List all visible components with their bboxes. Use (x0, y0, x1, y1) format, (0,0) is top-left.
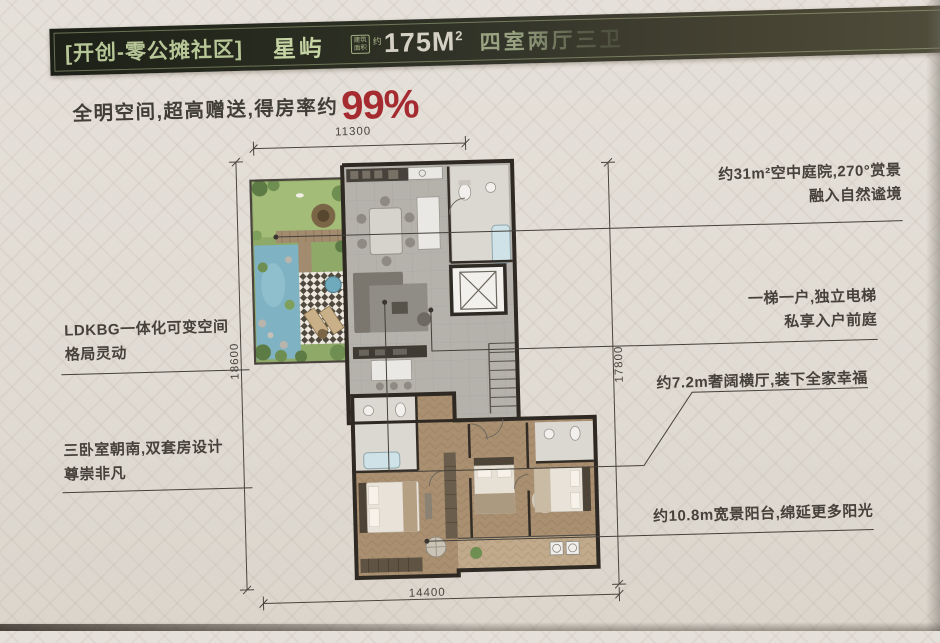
bar-island (371, 360, 412, 391)
dimension-top: 11300 (313, 125, 393, 139)
elevator-shaft (451, 265, 506, 314)
annotation-ldkbg-line1: LDKBG一体化可变空间 (64, 315, 229, 343)
annotation-bedrooms: 三卧室朝南,双套房设计 尊崇非凡 (63, 436, 224, 488)
sky-courtyard (250, 177, 352, 363)
annotation-elevator-line1: 一梯一户,独立电梯 (748, 284, 877, 311)
master-bathtub (364, 452, 400, 469)
brochure-photo: { "header": { "community_tag": "[开创-零公摊社… (0, 0, 940, 631)
annotation-ldkbg-line2: 格局灵动 (65, 339, 230, 367)
annotation-courtyard-line2: 融入自然谧境 (719, 183, 903, 212)
annotation-bedrooms-line1: 三卧室朝南,双套房设计 (63, 436, 223, 464)
upper-bathroom (448, 165, 513, 265)
kitchen-island (417, 197, 440, 250)
dimension-right: 17800 (613, 332, 627, 396)
annotation-elevator-line2: 私享入户前庭 (748, 308, 877, 335)
master-bathroom (354, 396, 418, 472)
garden-spa (325, 276, 341, 292)
page-content: [开创-零公摊社区] 星屿 建筑 面积 约 175M2 四室两厅三卫 全明空间,… (0, 0, 940, 643)
bedroom-3-bed (531, 467, 591, 514)
master-wardrobe (360, 557, 422, 573)
bedroom-2-bed (474, 457, 515, 514)
annotation-ldkbg: LDKBG一体化可变空间 格局灵动 (64, 315, 230, 367)
annotation-bedrooms-line2: 尊崇非凡 (64, 460, 224, 488)
dimension-bottom: 14400 (387, 586, 467, 600)
annotation-courtyard: 约31m²空中庭院,270°赏景 融入自然谧境 (718, 159, 902, 212)
annotation-elevator: 一梯一户,独立电梯 私享入户前庭 (748, 284, 878, 335)
dimension-left: 18600 (228, 329, 242, 393)
bedroom-3-bath (535, 421, 594, 463)
hall-wardrobe (444, 452, 458, 538)
